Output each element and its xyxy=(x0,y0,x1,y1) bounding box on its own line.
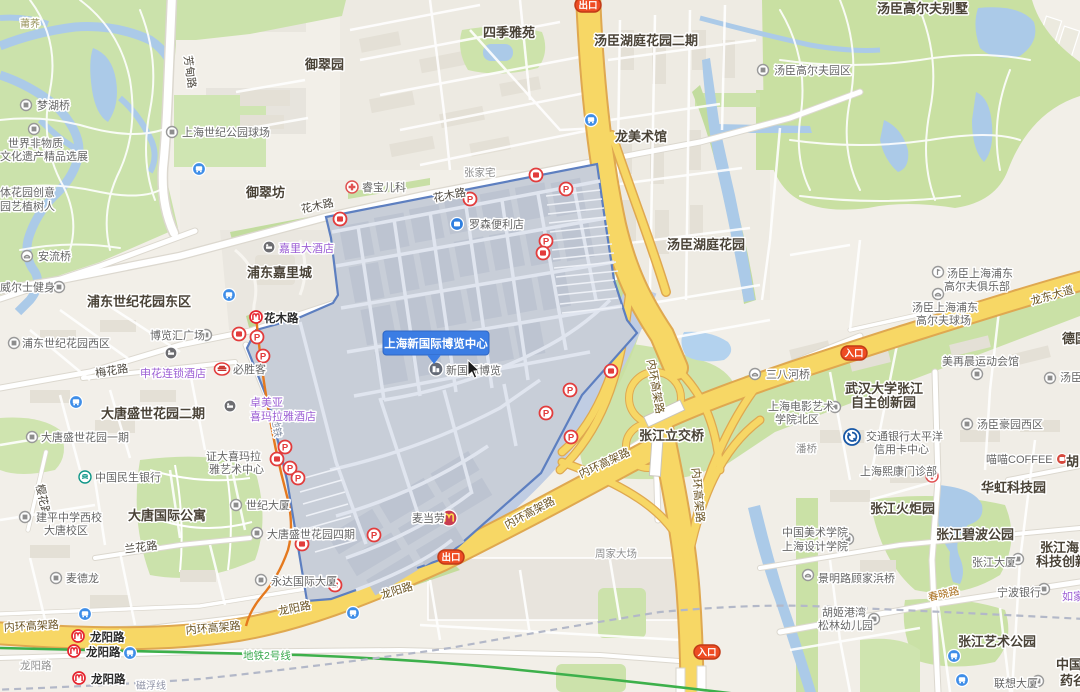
svg-text:中国美术学院: 中国美术学院 xyxy=(782,525,848,539)
svg-text:德国: 德国 xyxy=(1062,331,1080,346)
svg-text:博览汇广场: 博览汇广场 xyxy=(150,328,205,342)
svg-text:汤臣上海浦东: 汤臣上海浦东 xyxy=(947,266,1013,280)
svg-text:胡: 胡 xyxy=(1066,454,1079,469)
svg-text:雅艺术中心: 雅艺术中心 xyxy=(209,462,264,476)
svg-text:体花园创意: 体花园创意 xyxy=(0,185,55,199)
svg-text:龙阳路: 龙阳路 xyxy=(89,630,125,644)
svg-text:张江碧波公园: 张江碧波公园 xyxy=(936,527,1014,542)
svg-text:周家大场: 周家大场 xyxy=(595,547,637,560)
svg-text:罗森便利店: 罗森便利店 xyxy=(469,217,524,231)
svg-text:大唐国际公寓: 大唐国际公寓 xyxy=(128,508,206,523)
svg-text:文化遗产精品选展: 文化遗产精品选展 xyxy=(0,149,88,163)
svg-text:浦东世纪花园西区: 浦东世纪花园西区 xyxy=(22,337,110,350)
svg-text:入口: 入口 xyxy=(696,647,716,658)
svg-text:中国民生银行: 中国民生银行 xyxy=(95,470,161,484)
svg-text:美再晨运动会馆: 美再晨运动会馆 xyxy=(942,354,1019,368)
svg-text:龙阳路: 龙阳路 xyxy=(20,659,52,672)
svg-text:大唐盛世花园一期: 大唐盛世花园一期 xyxy=(41,430,129,444)
svg-text:上海设计学院: 上海设计学院 xyxy=(782,539,848,553)
svg-text:四季雅苑: 四季雅苑 xyxy=(483,25,535,40)
svg-text:武汉大学张江: 武汉大学张江 xyxy=(845,381,923,396)
svg-text:喵喵COFFEE: 喵喵COFFEE xyxy=(986,453,1053,466)
svg-text:宁波银行: 宁波银行 xyxy=(997,585,1041,599)
svg-text:睿宝儿科: 睿宝儿科 xyxy=(362,180,406,194)
svg-text:御翠园: 御翠园 xyxy=(304,57,344,72)
svg-text:出口: 出口 xyxy=(578,0,597,11)
svg-text:麦当劳: 麦当劳 xyxy=(412,511,445,525)
svg-text:信用卡中心: 信用卡中心 xyxy=(874,443,929,456)
svg-text:三八河桥: 三八河桥 xyxy=(766,368,810,381)
svg-text:梦湖桥: 梦湖桥 xyxy=(37,99,70,112)
svg-text:永达国际大厦: 永达国际大厦 xyxy=(271,574,337,588)
svg-text:自主创新园: 自主创新园 xyxy=(851,395,916,410)
svg-text:汤臣湖庭花园: 汤臣湖庭花园 xyxy=(667,237,745,252)
svg-text:张江火炬园: 张江火炬园 xyxy=(870,501,935,516)
svg-text:高尔夫俱乐部: 高尔夫俱乐部 xyxy=(944,279,1010,293)
svg-text:药谷: 药谷 xyxy=(1060,673,1080,688)
svg-text:园艺植树人: 园艺植树人 xyxy=(0,199,55,213)
svg-text:张江艺术公园: 张江艺术公园 xyxy=(958,634,1036,649)
svg-text:大唐盛世花园四期: 大唐盛世花园四期 xyxy=(267,527,355,541)
svg-text:交通银行太平洋: 交通银行太平洋 xyxy=(866,429,943,443)
svg-text:上海熙康门诊部: 上海熙康门诊部 xyxy=(860,464,937,478)
svg-text:汤臣豪: 汤臣豪 xyxy=(1060,370,1080,384)
svg-text:建平中学西校: 建平中学西校 xyxy=(36,510,102,524)
svg-text:麦德龙: 麦德龙 xyxy=(66,571,99,585)
svg-text:浦东世纪花园东区: 浦东世纪花园东区 xyxy=(87,294,191,309)
svg-text:御翠坊: 御翠坊 xyxy=(245,185,285,200)
svg-text:张江立交桥: 张江立交桥 xyxy=(639,428,705,443)
svg-text:申花连锁酒店: 申花连锁酒店 xyxy=(140,366,206,380)
svg-text:上海电影艺术: 上海电影艺术 xyxy=(768,399,834,413)
svg-text:胡姬港湾: 胡姬港湾 xyxy=(822,605,866,619)
svg-text:世界非物质: 世界非物质 xyxy=(8,136,63,150)
svg-text:浦东嘉里城: 浦东嘉里城 xyxy=(247,265,312,280)
svg-text:入口: 入口 xyxy=(843,348,863,359)
svg-text:大唐盛世花园二期: 大唐盛世花园二期 xyxy=(101,406,205,421)
svg-text:安流桥: 安流桥 xyxy=(38,249,71,263)
svg-text:上海世纪公园球场: 上海世纪公园球场 xyxy=(182,125,270,139)
svg-text:潘桥: 潘桥 xyxy=(796,443,817,455)
svg-text:花木路: 花木路 xyxy=(264,311,299,325)
svg-text:汤臣上海浦东: 汤臣上海浦东 xyxy=(912,300,978,314)
svg-text:卓美亚: 卓美亚 xyxy=(250,396,283,409)
svg-text:嘉里大酒店: 嘉里大酒店 xyxy=(279,241,334,255)
svg-text:出口: 出口 xyxy=(441,551,460,563)
svg-text:汤臣豪园西区: 汤臣豪园西区 xyxy=(977,417,1043,431)
svg-text:高尔夫球场: 高尔夫球场 xyxy=(916,313,971,327)
svg-text:龙阳路: 龙阳路 xyxy=(85,645,121,659)
svg-text:证大喜玛拉: 证大喜玛拉 xyxy=(206,449,261,463)
svg-text:张江大厦: 张江大厦 xyxy=(972,555,1016,569)
svg-text:必胜客: 必胜客 xyxy=(233,362,266,376)
svg-text:景明路顾家浜桥: 景明路顾家浜桥 xyxy=(818,571,895,585)
svg-text:汤臣湖庭花园二期: 汤臣湖庭花园二期 xyxy=(594,33,698,48)
svg-text:世纪大厦: 世纪大厦 xyxy=(246,498,290,512)
svg-text:华虹科技园: 华虹科技园 xyxy=(981,480,1046,495)
svg-text:龙阳路: 龙阳路 xyxy=(90,672,126,686)
svg-text:磁浮线: 磁浮线 xyxy=(136,679,166,692)
svg-text:汤臣高尔夫园区: 汤臣高尔夫园区 xyxy=(774,63,851,77)
svg-text:喜玛拉雅酒店: 喜玛拉雅酒店 xyxy=(250,409,316,423)
svg-text:威尔士健身: 威尔士健身 xyxy=(0,280,55,294)
svg-text:上海新国际博览中心: 上海新国际博览中心 xyxy=(384,337,488,351)
svg-text:松林幼儿园: 松林幼儿园 xyxy=(818,618,873,632)
svg-text:学院北区: 学院北区 xyxy=(775,412,819,426)
svg-text:科技创新: 科技创新 xyxy=(1036,554,1080,569)
svg-text:张家宅: 张家宅 xyxy=(464,166,496,179)
svg-text:如家酒: 如家酒 xyxy=(1062,589,1080,603)
svg-text:莆荞: 莆荞 xyxy=(20,17,40,30)
svg-text:联想大厦: 联想大厦 xyxy=(994,676,1038,690)
svg-text:地铁2号线: 地铁2号线 xyxy=(243,649,291,662)
svg-text:中国: 中国 xyxy=(1056,657,1080,672)
svg-text:汤臣高尔夫别墅: 汤臣高尔夫别墅 xyxy=(877,1,968,16)
svg-text:龙美术馆: 龙美术馆 xyxy=(615,129,667,144)
svg-text:大唐校区: 大唐校区 xyxy=(44,523,88,537)
svg-text:张江海: 张江海 xyxy=(1040,540,1079,555)
